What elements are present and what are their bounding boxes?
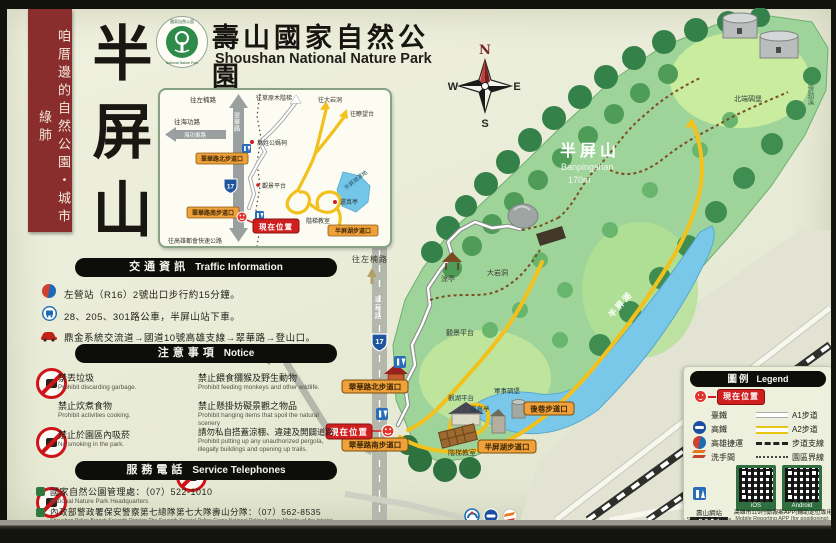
north-trailhead-label: 翠華路北步道口 [349, 382, 402, 392]
police-bullet-icon [36, 508, 45, 517]
service-header: 服務電話Service Telephones [75, 461, 337, 480]
service-en: National Nature Park Headquarters [50, 498, 350, 506]
tra-logo-icon [484, 509, 498, 520]
inset-to-haigong-label: 往海功路 [174, 117, 201, 126]
notice-item: 禁止於園區內吸菸 No smoking in the park. [58, 428, 170, 449]
traffic-item: 28、205、301路公車，半屏山站下車。 [64, 309, 240, 323]
toilet-icon [376, 408, 388, 420]
inset-toilet-icon [242, 144, 251, 153]
inset-south-trailhead-pill: 翠華路南步道口 [187, 207, 239, 218]
backlane-trailhead-pill: 後巷步道口 [524, 402, 574, 415]
highway-17-number: 17 [375, 337, 383, 346]
a1-line-sample [756, 412, 788, 418]
legend-boundary-label: 園區界線 [792, 452, 824, 463]
backlane-trailhead-label: 後巷步道口 [530, 404, 568, 414]
houjin-creek-label: 後勁溪 [806, 84, 814, 105]
sign-photo: 17 往左楠路 往海功路 半屏山 Banpingshan 170m 北端碉堡 大… [0, 0, 836, 543]
inset-lookout-label: 往瞭望台 [350, 110, 374, 118]
inset-trail-a2 [287, 110, 344, 230]
south-trailhead-label: 翠華路南步道口 [349, 440, 402, 450]
legend-tra-label: 臺鐵 [711, 410, 727, 421]
legend-leader-line [708, 396, 716, 398]
notice-zh: 禁止炊煮食物 [58, 399, 170, 412]
website-caption-zh: 壽山網站 [684, 507, 734, 517]
inset-platform-dot [256, 183, 260, 187]
app-caption-zh: 高雄市119行動報案APP(輔助定位專用) [734, 507, 830, 516]
inset-north-trailhead-pill: 翠華路北步道口 [196, 153, 248, 164]
inset-south-trailhead-label: 翠華路南步道口 [192, 209, 234, 217]
legend-header: 圖例Legend [690, 371, 826, 387]
sign-frame-right [831, 0, 836, 543]
pavilion-label: 還真亭 [470, 404, 490, 413]
tra-icon [693, 421, 706, 434]
north-bunker-label: 北端碉堡 [734, 94, 762, 103]
pavilion-shelter-label: 涼亭 [441, 274, 455, 283]
lake-trailhead-pill: 半屏湖步道口 [478, 440, 536, 453]
toilet-legend-icon [693, 487, 706, 500]
notice-zh: 禁止餵食獼猴及野生動物 [198, 371, 340, 384]
krt-logo-icon [465, 509, 479, 520]
legend-a1-label: A1步道 [792, 410, 818, 421]
big-rock-cave-label: 大岩洞 [487, 268, 508, 277]
inset-current-location-label: 現在位置 [259, 222, 293, 232]
lake-trailhead-label: 半屏湖步道口 [485, 442, 530, 452]
notice-en: No smoking in the park. [58, 441, 170, 449]
thsr-icon [692, 449, 707, 460]
south-trailhead-pill: 翠華路南步道口 [342, 438, 408, 451]
legend-current-location: 現在位置 [717, 389, 765, 405]
highway-17-shield: 17 [372, 334, 387, 351]
notice-item: 禁止炊煮食物 Prohibit activities cooking. [58, 399, 170, 420]
traffic-item: 鼎金系統交流道→國道10號高雄支線→翠華路→登山口。 [64, 330, 316, 344]
compass-w: W [448, 81, 459, 93]
inset-lake-trailhead-pill: 半屏湖步道口 [328, 225, 378, 236]
mountain-name-zh: 半屏山 [560, 141, 620, 160]
legend-title-zh: 圖例 [727, 374, 750, 385]
inset-map: 17 翠華路北步道口 翠華路南步道口 半屏湖步道口 現在位置 [158, 88, 392, 248]
notice-header: 注意事項Notice [75, 344, 337, 363]
notice-item: 禁丟垃圾 Prohibit discarding garbage. [58, 371, 170, 392]
inset-to-zuonan-label: 往左楠路 [190, 95, 217, 104]
inset-grass-stairs-label: 往草原木階梯 [256, 94, 292, 102]
inset-map-canvas: 17 翠華路北步道口 翠華路南步道口 半屏湖步道口 現在位置 [160, 90, 390, 246]
inset-haigong-east-label: 海功東路 [184, 131, 207, 139]
notice-title-en: Notice [224, 348, 255, 359]
inset-classroom-label: 階梯教室 [306, 217, 330, 225]
notice-item: 禁止懸掛妨礙景觀之物品 Prohibit hanging items that … [198, 399, 340, 427]
notice-zh: 請勿私自搭蓋涼棚、違建及開闢道路 [198, 426, 340, 438]
metro-icon [42, 284, 56, 303]
toilet-icon [394, 356, 406, 368]
slogan-banner: 咱厝邊的自然公園・城市綠肺 [28, 9, 72, 232]
notice-zh: 禁止懸掛妨礙景觀之物品 [198, 399, 340, 412]
cuihua-road-label: 翠華路 [373, 296, 381, 320]
inset-highway-17-number: 17 [227, 184, 235, 191]
inset-pavilion-label: 還真亭 [340, 198, 358, 206]
notice-en: Prohibit activities cooking. [58, 412, 170, 420]
logo-ring-text-zh: 國家自然公園 [157, 19, 207, 25]
legend-hsr-label: 高鐵 [711, 424, 727, 435]
notice-en: Prohibit discarding garbage. [58, 384, 170, 392]
thsr-logo-icon [503, 509, 517, 520]
inset-pavilion-dot [333, 200, 337, 204]
sign-frame-bottom [0, 520, 836, 543]
ios-qr-code [739, 468, 773, 502]
inset-cuihua-road-label: 翠華路 [232, 112, 239, 132]
inset-north-trailhead-label: 翠華路北步道口 [201, 155, 243, 163]
inset-viewing-platform-label: 觀景平台 [262, 182, 286, 190]
notice-zh: 禁止於園區內吸菸 [58, 428, 170, 441]
inset-trail-a1 [249, 95, 301, 208]
mountain-elevation: 170m [568, 175, 591, 185]
traffic-title-en: Traffic Information [195, 262, 283, 273]
logo-tree-icon [165, 25, 199, 59]
branch-line-sample [756, 442, 788, 445]
notice-en: Prohibit putting up any unauthorized per… [198, 438, 340, 453]
inset-shrine-dot [250, 140, 254, 144]
ios-qr-frame: iOS [736, 465, 776, 511]
service-title-en: Service Telephones [192, 465, 285, 476]
inset-shrine-label: 萬姓公媽祠 [257, 139, 287, 147]
big-rock [508, 204, 538, 228]
notice-en: Prohibit hanging items that spoil the na… [198, 412, 340, 427]
legend-branch-label: 步道支線 [792, 438, 824, 449]
krt-icon [693, 436, 706, 449]
traffic-item: 左營站（R16）2號出口步行約15分鐘。 [64, 287, 240, 301]
inset-expressway-label: 往高雄都會快速公路 [168, 237, 222, 245]
inset-big-cave-label: 往大岩洞 [318, 96, 342, 104]
to-zuonan-road-label: 往左楠路 [352, 254, 388, 264]
inset-highway-17-shield: 17 [224, 179, 237, 194]
compass-e: E [513, 81, 520, 93]
notice-zh: 禁丟垃圾 [58, 371, 170, 384]
compass-rose: N W E S [445, 38, 525, 130]
legend-current-location-icon [694, 390, 707, 403]
legend-panel: 圖例Legend 現在位置 臺鐵 高鐵 高雄捷運 洗手間 A1步道 A2步道 步… [683, 366, 833, 522]
service-zh: 國家自然公園管理處：（07）522-1010 [50, 485, 350, 498]
android-qr-code [785, 468, 819, 502]
north-trailhead-pill: 翠華路北步道口 [342, 380, 408, 393]
lake-platform-label: 觀湖平台 [448, 393, 474, 402]
compass-n: N [479, 43, 491, 58]
notice-title-zh: 注意事項 [158, 347, 218, 359]
car-icon [40, 329, 58, 347]
a2-line-sample [756, 426, 788, 434]
legend-a2-label: A2步道 [792, 424, 818, 435]
boundary-line-sample [756, 456, 788, 458]
viewing-platform-label: 觀景平台 [446, 328, 474, 337]
mountain-name-en: Banpingshan [561, 162, 614, 172]
notice-en: Prohibit feeding monkeys and other wildl… [198, 384, 340, 392]
bus-icon [42, 306, 57, 326]
page-title: 半屏山 [82, 22, 152, 267]
military-bunker-label: 軍事碉堡 [494, 386, 521, 395]
notice-item: 請勿私自搭蓋涼棚、違建及開闢道路 Prohibit putting up any… [198, 426, 340, 453]
hq-bullet-icon [36, 487, 45, 496]
inset-lake-trailhead-label: 半屏湖步道口 [335, 227, 371, 235]
stairs-classroom-label: 階梯教室 [448, 448, 476, 457]
android-qr-frame: Android [782, 465, 822, 511]
inset-a2-arrow [339, 109, 348, 119]
service-title-zh: 服務電話 [126, 464, 186, 476]
legend-krt-label: 高雄捷運 [711, 438, 743, 449]
legend-title-en: Legend [757, 374, 789, 384]
notice-item: 禁止餵食獼猴及野生動物 Prohibit feeding monkeys and… [198, 371, 340, 392]
traffic-header: 交通資訊Traffic Information [75, 258, 337, 277]
park-logo: 國家自然公園 National Nature Park [156, 16, 208, 68]
traffic-title-zh: 交通資訊 [129, 261, 189, 273]
park-title-en: Shoushan National Nature Park [215, 51, 432, 67]
service-item: 國家自然公園管理處：（07）522-1010 National Nature P… [50, 485, 350, 506]
legend-toilet-label: 洗手間 [711, 452, 735, 463]
compass-s: S [481, 118, 488, 130]
service-zh: 內政部警政署保安警察第七總隊第七大隊壽山分隊：（07）562-8535 [50, 506, 360, 518]
logo-ring-text-en: National Nature Park [157, 61, 207, 65]
